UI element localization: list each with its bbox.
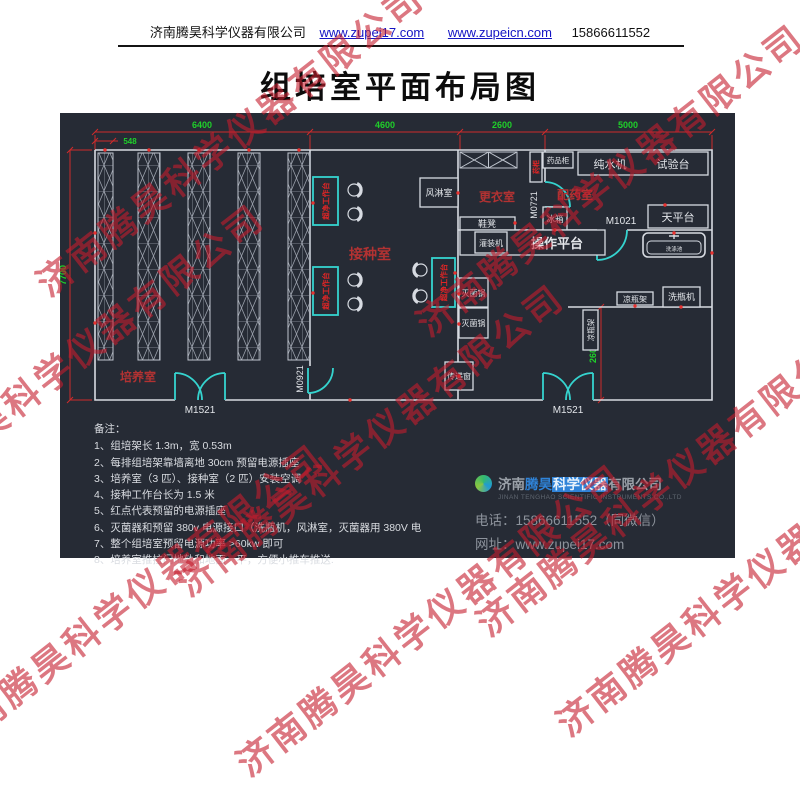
outlet-dot — [513, 221, 516, 224]
header-divider — [118, 45, 684, 47]
outlet-dot — [93, 231, 96, 234]
header-company: 济南腾昊科学仪器有限公司 — [150, 25, 306, 40]
water-purifier-label: 纯水机 — [594, 157, 627, 171]
outlet-dot — [457, 292, 460, 295]
small-cabinet-label: 药柜 — [532, 160, 541, 174]
door-m1521-left — [175, 373, 225, 400]
notes-heading: 备注： — [94, 421, 464, 437]
dim-left-7700: 7700 — [60, 265, 68, 285]
outlet-dot — [453, 271, 456, 274]
page-header: 济南腾昊科学仪器有限公司 www.zupei17.com www.zupeicn… — [0, 22, 800, 41]
clean-bench-label-2: 超净工作台 — [321, 272, 331, 311]
room-label-dispensing: 配药室 — [557, 187, 593, 202]
footer-phone-line: 电话：15866611552（同微信） — [475, 509, 730, 529]
door-label-m1021: M1021 — [606, 216, 637, 227]
chair-icon — [348, 207, 361, 221]
header-link-zupeicn[interactable]: www.zupeicn.com — [448, 25, 552, 40]
outlet-dot — [679, 305, 682, 308]
note-item-8: 8、培养室推拉门地轨和地面一平，方便小推车推送. — [94, 552, 464, 568]
outlet-dot — [457, 374, 460, 377]
dim-rack-548: 548 — [123, 137, 137, 146]
outlet-dot — [672, 231, 675, 234]
outlet-dot — [663, 203, 666, 206]
test-bench-label: 试验台 — [657, 157, 690, 171]
header-link-zupei17[interactable]: www.zupei17.com — [319, 25, 424, 40]
web-value[interactable]: www.zupei17.com — [516, 537, 625, 552]
cad-panel: 6400 4600 2600 5000 548 7700 2600 — [60, 113, 735, 558]
outlet-dot — [710, 251, 713, 254]
outlet-dot — [553, 228, 556, 231]
company-name-pre: 济南 — [498, 477, 525, 492]
culture-racks — [98, 153, 310, 360]
outlet-dot — [311, 291, 314, 294]
header-phone: 15866611552 — [572, 25, 651, 40]
sink — [643, 233, 705, 257]
note-item-5: 5、红点代表预留的电源插座 — [94, 503, 464, 519]
note-item-7: 7、整个组培室预留电源功率 >60kw 即可 — [94, 536, 464, 552]
note-item-1: 1、组培架长 1.3m，宽 0.53m — [94, 438, 464, 454]
chair-icon — [414, 263, 427, 277]
air-shower-label: 风淋室 — [425, 187, 452, 198]
power-outlet-dots — [93, 148, 713, 401]
clean-bench-label-1: 超净工作台 — [321, 182, 331, 221]
outlet-dot — [197, 148, 200, 151]
dim-top-2600: 2600 — [492, 120, 512, 130]
company-logo-icon — [475, 475, 492, 492]
note-item-6: 6、灭菌器和预留 380v 电源接口（洗瓶机，风淋室，灭菌器用 380V 电 — [94, 520, 464, 536]
culture-rack — [138, 153, 160, 360]
outlet-dot — [247, 148, 250, 151]
door-label-m0721: M0721 — [529, 191, 539, 219]
footer-logo-block: 济南腾昊科学仪器有限公司 JINAN TENGHAO SCIENTIFIC IN… — [475, 473, 730, 553]
company-name-mid: 腾昊 — [525, 477, 552, 492]
room-label-changing: 更衣室 — [479, 189, 515, 204]
dim-top-4600: 4600 — [375, 120, 395, 130]
outlet-dot — [456, 191, 459, 194]
culture-rack — [288, 153, 310, 360]
footer-company-name: 济南腾昊科学仪器有限公司 — [498, 473, 662, 493]
outlet-dot — [311, 201, 314, 204]
outlet-dot — [93, 321, 96, 324]
cooling-rack-v-label: 凉瓶架 — [586, 318, 596, 341]
room-label-inoculation: 接种室 — [349, 246, 391, 262]
chair-icon — [414, 289, 427, 303]
outlet-dot — [457, 322, 460, 325]
chair-icon — [348, 273, 361, 287]
dim-top-6400: 6400 — [192, 120, 212, 130]
outlet-dot — [103, 148, 106, 151]
outlet-dot — [633, 304, 636, 307]
dim-top-5000: 5000 — [618, 120, 638, 130]
clean-bench-label-3: 超净工作台 — [439, 263, 449, 302]
culture-rack — [98, 153, 113, 360]
note-item-4: 4、接种工作台长为 1.5 米 — [94, 487, 464, 503]
cooling-rack-h-label: 凉瓶架 — [623, 294, 647, 304]
operation-platform-label: 操作平台 — [531, 236, 583, 251]
medicine-cabinet-label: 药品柜 — [547, 155, 570, 165]
door-label-m1521-left: M1521 — [185, 405, 216, 416]
footer-company-en: JINAN TENGHAO SCIENTIFIC INSTRUMENTS CO.… — [498, 494, 730, 501]
room-label-culture: 培养室 — [120, 369, 156, 384]
changing-room-cabinet — [460, 152, 517, 168]
chair-icon — [348, 183, 361, 197]
sterilizer-label-2: 灭菌锅 — [462, 318, 486, 328]
filling-machine-label: 灌装机 — [479, 238, 503, 248]
culture-rack — [238, 153, 260, 360]
notes-block: 备注： 1、组培架长 1.3m，宽 0.53m 2、每排组培架靠墙离地 30cm… — [94, 421, 464, 569]
sterilizer-label-1: 灭菌锅 — [462, 288, 486, 298]
door-m0921-swing — [308, 368, 333, 393]
culture-rack — [188, 153, 210, 360]
bottle-washer-label: 洗瓶机 — [668, 291, 695, 302]
outlet-dot — [348, 398, 351, 401]
page-title: 组培室平面布局图 — [0, 62, 800, 107]
sink-label: 洗涤池 — [666, 245, 683, 253]
door-label-m1521-right: M1521 — [553, 405, 584, 416]
door-label-m0921: M0921 — [295, 365, 305, 393]
balance-label: 天平台 — [662, 210, 695, 224]
outlet-dot — [147, 148, 150, 151]
web-label: 网址： — [475, 537, 516, 552]
floor-plan: 6400 4600 2600 5000 548 7700 2600 — [60, 113, 735, 419]
company-name-post: 有限公司 — [608, 477, 662, 492]
footer-web-line: 网址：www.zupei17.com — [475, 533, 730, 553]
note-item-2: 2、每排组培架靠墙离地 30cm 预留电源插座 — [94, 455, 464, 471]
chair-icon — [348, 297, 361, 311]
outlet-dot — [297, 148, 300, 151]
phone-label: 电话： — [475, 513, 516, 528]
company-name-highlight: 科学仪器 — [552, 477, 608, 492]
fridge-label: 冰箱 — [546, 214, 564, 224]
door-m1521-right — [543, 373, 593, 400]
note-item-3: 3、培养室（3 匹）、接种室（2 匹）安装空调 — [94, 471, 464, 487]
shoe-bench-label: 鞋凳 — [478, 218, 496, 229]
phone-value: 15866611552（同微信） — [516, 513, 665, 528]
